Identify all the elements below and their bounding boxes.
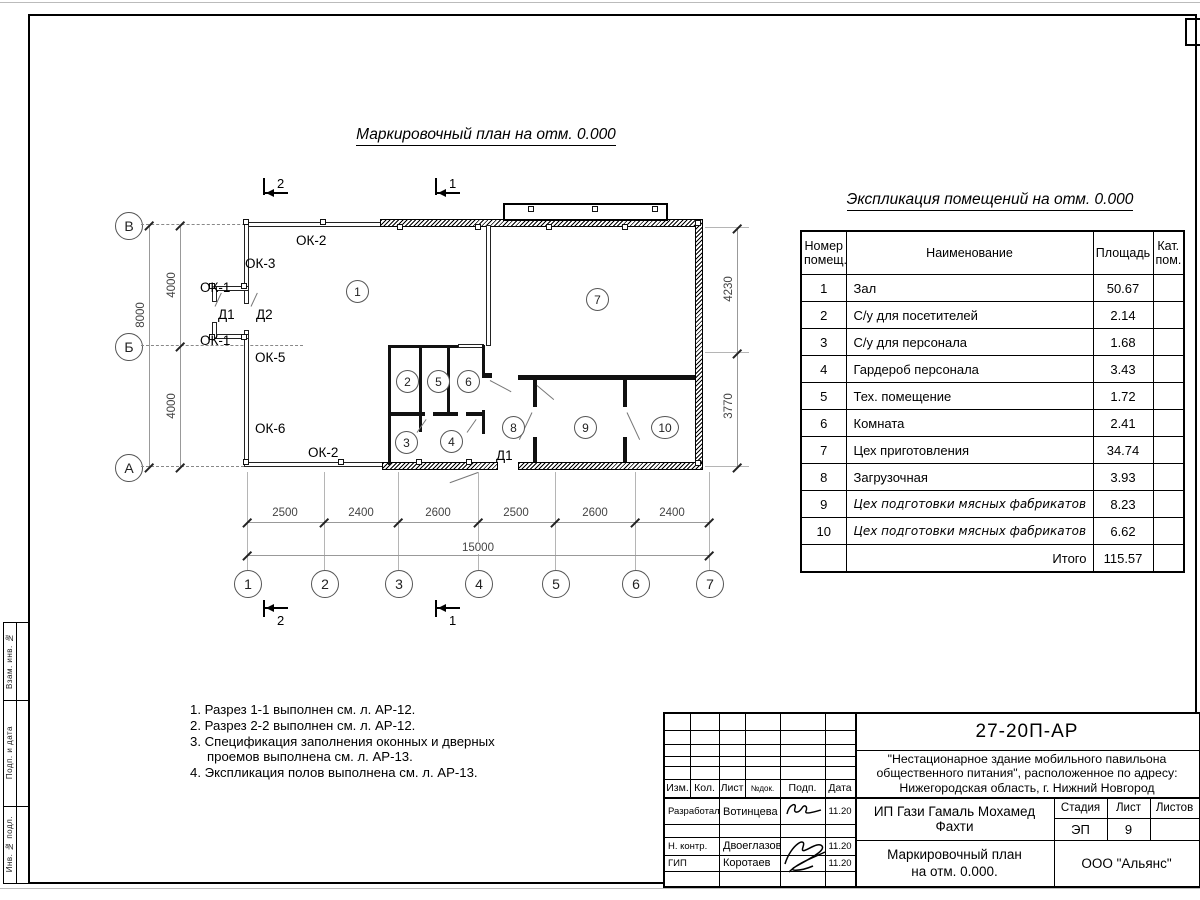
cell-area: 8.23	[1093, 491, 1153, 518]
tb-role-razrabotal: Разработал	[665, 799, 719, 824]
wall-room1-room7	[486, 225, 491, 346]
tb-col-podp: Подп.	[780, 779, 825, 797]
ext-line	[705, 466, 749, 467]
cell-area: 2.14	[1093, 302, 1153, 329]
schedule-header-row: Номер помещ. Наименование Площадь Кат. п…	[801, 231, 1184, 275]
notes-list: 1. Разрез 1-1 выполнен см. л. АР-12. 2. …	[190, 702, 512, 781]
tb-company: ООО "Альянс"	[1054, 840, 1199, 886]
cell-num: 7	[801, 437, 846, 464]
tb-sheet-title-line1: Маркировочный план	[887, 846, 1022, 863]
cell-num: 4	[801, 356, 846, 383]
cell-area: 3.93	[1093, 464, 1153, 491]
stamp-line	[16, 622, 17, 884]
tb-sheet-value: 9	[1107, 818, 1150, 840]
dim-value-total: 15000	[450, 542, 506, 554]
window-label-ok1: ОК-1	[200, 280, 230, 295]
stamp-text: Взам. инв. №	[5, 633, 14, 689]
cell-area: 1.72	[1093, 383, 1153, 410]
cell-name: Гардероб персонала	[846, 356, 1093, 383]
table-row: 6Комната2.41	[801, 410, 1184, 437]
cell-cat	[1153, 518, 1184, 545]
window-label-ok2: ОК-2	[308, 445, 338, 460]
cell-area: 1.68	[1093, 329, 1153, 356]
sheet-edge-top	[0, 2, 1200, 3]
note-item: 4. Экспликация полов выполнена см. л. АР…	[190, 765, 512, 781]
table-row: 8Загрузочная3.93	[801, 464, 1184, 491]
section-number: 1	[449, 176, 456, 191]
cell-num: 8	[801, 464, 846, 491]
axis-letter-v: В	[115, 212, 143, 240]
cell-name: Цех подготовки мясных фабрикатов	[846, 491, 1093, 518]
table-row: 3С/у для персонала1.68	[801, 329, 1184, 356]
room-circle-4: 4	[440, 430, 463, 453]
window-mark	[243, 459, 249, 465]
door-mark	[416, 459, 422, 465]
tb-col-data: Дата	[825, 779, 855, 797]
stamp-label-podp: Подп. и дата	[3, 700, 16, 806]
table-row: 1Зал50.67	[801, 275, 1184, 302]
cell-cat	[1153, 410, 1184, 437]
door-label-d1: Д1	[496, 448, 513, 463]
table-row: 4Гардероб персонала3.43	[801, 356, 1184, 383]
room-number: 1	[354, 285, 361, 299]
room-circle-6: 6	[457, 370, 480, 393]
tb-col-list: Лист	[719, 779, 745, 797]
dim-value: 2500	[493, 507, 539, 519]
signature-dvoeglazov-korotaev	[777, 832, 831, 881]
tb-stage-value: ЭП	[1054, 818, 1107, 840]
dim-value: 3770	[723, 384, 735, 428]
window-label-ok6: ОК-6	[255, 421, 285, 436]
stamp-text: Подп. и дата	[5, 726, 14, 779]
dim-value: 2400	[649, 507, 695, 519]
dim-value: 2600	[415, 507, 461, 519]
bay-post	[241, 283, 247, 289]
sheet-edge-bottom	[0, 888, 1200, 889]
axis-number: 3	[395, 576, 403, 592]
section-arrow-icon	[266, 604, 274, 612]
door-gap	[425, 412, 433, 416]
room-number: 8	[510, 421, 517, 435]
dim-line	[149, 225, 150, 467]
section-arrow-icon	[266, 189, 274, 197]
dim-value: 8000	[135, 293, 147, 337]
tb-line	[665, 824, 855, 825]
wall-stub	[533, 437, 537, 462]
section-number: 2	[277, 613, 284, 628]
schedule-title: Экспликация помещений на отм. 0.000	[820, 191, 1160, 209]
axis-letter: Б	[124, 339, 133, 355]
door-label-d2: Д2	[256, 307, 273, 322]
axis-number: 4	[475, 576, 483, 592]
room-number: 3	[403, 436, 410, 450]
room-circle-7: 7	[586, 288, 609, 311]
table-row: 2С/у для посетителей2.14	[801, 302, 1184, 329]
axis-number: 5	[552, 576, 560, 592]
room-circle-10: 10	[651, 416, 679, 439]
stamp-label-inv: Инв. № подл.	[3, 806, 16, 883]
note-item: 2. Разрез 2-2 выполнен см. л. АР-12.	[190, 718, 512, 734]
dim-value: 4000	[166, 384, 178, 428]
platform-post	[528, 206, 534, 212]
cell-cat	[1153, 437, 1184, 464]
window-mark	[695, 220, 701, 226]
cell-cat	[1153, 302, 1184, 329]
tb-sheets-value	[1150, 818, 1199, 840]
cell-name: Тех. помещение	[846, 383, 1093, 410]
axis-number-7: 7	[696, 570, 724, 598]
door-label-d1: Д1	[218, 307, 235, 322]
wall-stub	[623, 437, 627, 462]
cell-empty	[801, 545, 846, 573]
room-schedule-table: Номер помещ. Наименование Площадь Кат. п…	[800, 230, 1185, 573]
col-header-area: Площадь	[1093, 231, 1153, 275]
axis-number-4: 4	[465, 570, 493, 598]
tb-doc-number: 27-20П-АР	[855, 714, 1199, 750]
block-wall-mid	[388, 412, 485, 416]
cell-name: Цех приготовления	[846, 437, 1093, 464]
window-label-ok1: ОК-1	[200, 333, 230, 348]
window-label-ok3: ОК-3	[245, 256, 275, 271]
axis-number-5: 5	[542, 570, 570, 598]
tb-name-korotaev: Коротаев	[719, 855, 780, 871]
corner-stamp-box	[1185, 18, 1200, 46]
wall-rooms8910-top	[518, 375, 695, 380]
tb-line	[665, 756, 855, 757]
tb-project-title: "Нестационарное здание мобильного павиль…	[857, 750, 1197, 797]
drawing-sheet: Маркировочный план на отм. 0.000 2 1 2 1…	[0, 0, 1200, 900]
room-circle-5: 5	[427, 370, 450, 393]
window-label-ok5: ОК-5	[255, 350, 285, 365]
section-number: 2	[277, 176, 284, 191]
cell-area: 2.41	[1093, 410, 1153, 437]
platform-post	[592, 206, 598, 212]
window-mark	[622, 224, 628, 230]
wall-right-hatched	[695, 219, 703, 470]
door-mark	[466, 459, 472, 465]
tb-name-votintseva: Вотинцева	[719, 799, 780, 824]
tb-client: ИП Гази Гамаль Мохамед Фахти	[855, 797, 1054, 840]
dim-line	[247, 555, 709, 556]
table-row: 10Цех подготовки мясных фабрикатов6.62	[801, 518, 1184, 545]
bay-post	[241, 334, 247, 340]
ext-line	[705, 352, 749, 353]
total-label: Итого	[846, 545, 1093, 573]
axis-number-2: 2	[311, 570, 339, 598]
dim-value: 2400	[338, 507, 384, 519]
tb-sheets-label: Листов	[1150, 797, 1199, 818]
cell-num: 1	[801, 275, 846, 302]
tb-role-gip: ГИП	[665, 855, 719, 871]
cell-name: С/у для посетителей	[846, 302, 1093, 329]
cell-num: 9	[801, 491, 846, 518]
window-mark	[243, 219, 249, 225]
axis-letter: А	[124, 460, 133, 476]
plan-title-text: Маркировочный план на отм. 0.000	[356, 126, 616, 146]
cell-num: 3	[801, 329, 846, 356]
room-circle-9: 9	[574, 416, 597, 439]
tb-line	[665, 766, 855, 767]
cell-area: 6.62	[1093, 518, 1153, 545]
door-gap	[458, 412, 466, 416]
cell-area: 3.43	[1093, 356, 1153, 383]
room-number: 10	[658, 421, 671, 435]
tb-col-izm: Изм.	[665, 779, 690, 797]
window-mark	[695, 460, 701, 466]
note-item: 3. Спецификация заполнения оконных и две…	[190, 734, 512, 766]
window-mark	[338, 459, 344, 465]
room-number: 9	[582, 421, 589, 435]
axis-number-6: 6	[622, 570, 650, 598]
axis-number: 6	[632, 576, 640, 592]
cell-num: 10	[801, 518, 846, 545]
room-number: 7	[594, 293, 601, 307]
room-circle-2: 2	[396, 370, 419, 393]
cell-cat	[1153, 464, 1184, 491]
axis-number: 7	[706, 576, 714, 592]
room-number: 5	[435, 375, 442, 389]
partition-2-5	[419, 348, 422, 414]
room-circle-8: 8	[502, 416, 525, 439]
cell-name: Цех подготовки мясных фабрикатов	[846, 518, 1093, 545]
axis-letter-a: А	[115, 454, 143, 482]
cell-name: С/у для персонала	[846, 329, 1093, 356]
axis-letter-b: Б	[115, 333, 143, 361]
cell-cat	[1153, 329, 1184, 356]
room-number: 6	[465, 375, 472, 389]
schedule-title-text: Экспликация помещений на отм. 0.000	[847, 191, 1134, 211]
tb-role-nkontr: Н. контр.	[665, 837, 719, 855]
tb-sheet-title-line2: на отм. 0.000.	[911, 863, 997, 880]
stamp-line	[3, 883, 28, 884]
tb-date: 11.20	[825, 799, 855, 824]
room-number: 4	[448, 435, 455, 449]
title-block: Изм. Кол. Лист №док. Подп. Дата Разработ…	[663, 712, 1200, 888]
section-arrow-icon	[438, 604, 446, 612]
total-value: 115.57	[1093, 545, 1153, 573]
ext-line	[705, 227, 749, 228]
dim-value: 2600	[572, 507, 618, 519]
dim-value: 4230	[723, 267, 735, 311]
window-mark	[546, 224, 552, 230]
axis-letter: В	[124, 218, 133, 234]
section-number: 1	[449, 613, 456, 628]
block-wall-left	[388, 345, 391, 465]
tb-sheet-title: Маркировочный план на отм. 0.000.	[855, 840, 1054, 886]
cell-area: 50.67	[1093, 275, 1153, 302]
col-header-num: Номер помещ.	[801, 231, 846, 275]
schedule-total-row: Итого115.57	[801, 545, 1184, 573]
table-row: 5Тех. помещение1.72	[801, 383, 1184, 410]
cell-num: 2	[801, 302, 846, 329]
block-wall-right-lower	[482, 410, 485, 434]
axis-number: 1	[244, 576, 252, 592]
tb-col-kol: Кол.	[690, 779, 719, 797]
window-mark	[320, 219, 326, 225]
wall-bottom-hatched-left	[382, 462, 498, 470]
cell-empty	[1153, 545, 1184, 573]
col-header-cat: Кат. пом.	[1153, 231, 1184, 275]
block-window-top	[458, 344, 484, 348]
dim-value: 2500	[262, 507, 308, 519]
cell-cat	[1153, 275, 1184, 302]
cell-name: Комната	[846, 410, 1093, 437]
room-circle-3: 3	[395, 431, 418, 454]
tb-line	[665, 730, 855, 731]
cell-name: Зал	[846, 275, 1093, 302]
room-number: 2	[404, 375, 411, 389]
axis-number: 2	[321, 576, 329, 592]
dim-value: 4000	[166, 263, 178, 307]
room-circle-1: 1	[346, 280, 369, 303]
wall-bottom-thin	[244, 462, 384, 467]
cell-name: Загрузочная	[846, 464, 1093, 491]
wall-stub	[623, 380, 627, 407]
platform-post	[652, 206, 658, 212]
cell-area: 34.74	[1093, 437, 1153, 464]
tb-line	[665, 744, 855, 745]
wall-bottom-hatched-right	[518, 462, 703, 470]
dim-line	[737, 228, 738, 467]
door-flag	[482, 373, 492, 378]
cell-cat	[1153, 356, 1184, 383]
signature-votintseva	[783, 800, 825, 825]
wall-top-thin	[244, 222, 382, 227]
tb-sheet-label: Лист	[1107, 797, 1150, 818]
plan-title: Маркировочный план на отм. 0.000	[330, 126, 642, 144]
cell-num: 6	[801, 410, 846, 437]
window-label-ok2: ОК-2	[296, 233, 326, 248]
cell-cat	[1153, 491, 1184, 518]
wall-left-lower	[244, 330, 249, 467]
note-item: 1. Разрез 1-1 выполнен см. л. АР-12.	[190, 702, 512, 718]
section-arrow-icon	[438, 189, 446, 197]
tb-stage-label: Стадия	[1054, 797, 1107, 818]
axis-number-1: 1	[234, 570, 262, 598]
tb-name-dvoeglazov: Двоеглазов	[719, 837, 780, 855]
axis-number-3: 3	[385, 570, 413, 598]
table-row: 7Цех приготовления34.74	[801, 437, 1184, 464]
stamp-text: Инв. № подл.	[5, 816, 14, 872]
stamp-label-vzam: Взам. инв. №	[3, 622, 16, 700]
cell-num: 5	[801, 383, 846, 410]
col-header-name: Наименование	[846, 231, 1093, 275]
block-wall-right-upper	[482, 345, 485, 373]
tb-col-ndok: №док.	[745, 779, 780, 797]
window-mark	[397, 224, 403, 230]
table-row: 9Цех подготовки мясных фабрикатов8.23	[801, 491, 1184, 518]
window-mark	[475, 224, 481, 230]
cell-cat	[1153, 383, 1184, 410]
